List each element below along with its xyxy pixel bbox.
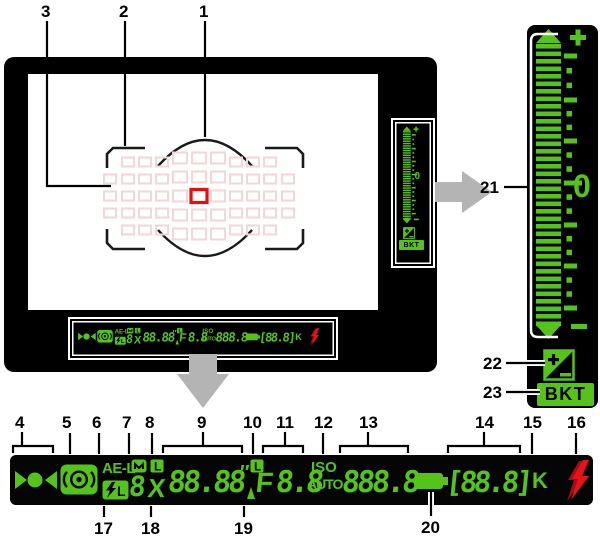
focus-indicator: [77, 329, 96, 343]
iso-label: ISO: [311, 460, 337, 475]
shutter-speed-value: 88.88: [166, 468, 244, 498]
callout-14: 14: [475, 414, 494, 431]
metering-icon: [97, 330, 113, 343]
flash-sync-indicator: X: [133, 334, 141, 345]
callout-9: 9: [197, 414, 206, 431]
callout-11: 11: [276, 414, 294, 431]
callout-20: 20: [421, 519, 440, 536]
flash-ready-bolt-icon: [309, 327, 322, 346]
callout-21: 21: [480, 179, 499, 196]
exposure-compensation-icon: [403, 227, 415, 239]
frames-remaining-value: [88.8]: [258, 331, 294, 343]
fv-lock-l: L: [117, 483, 126, 499]
callout-15: 15: [523, 414, 542, 431]
callout-17: 17: [94, 520, 113, 537]
scale-minus-glyph: [414, 219, 419, 221]
lcd-status-bar: AE-L L 8 L X 88.88 ″ L: [76, 326, 321, 347]
fv-lock-indicator: L: [102, 480, 129, 500]
active-focus-point: [191, 190, 207, 203]
fv-lock-indicator: L: [115, 337, 126, 345]
callout-3: 3: [41, 3, 50, 20]
exposure-compensation-icon: [543, 349, 575, 381]
viewfinder-diagram: AE-L L 8 L X 88.88 ″ L: [0, 0, 600, 540]
flash-sync-indicator: X: [147, 475, 167, 501]
exposure-compensation-icon: [543, 349, 575, 381]
comp-minus-glyph: [560, 373, 571, 377]
callout-18: 18: [141, 520, 160, 537]
callout-22: 22: [483, 355, 502, 372]
thousands-indicator: K: [532, 470, 548, 492]
viewfinder-exposure-indicator: 0 BKT: [391, 118, 435, 268]
shutter-speed-value: 88.88: [142, 331, 175, 344]
scale-minus-glyph: [571, 324, 587, 329]
callout-1: 1: [199, 3, 208, 20]
shutter-lock-icon: L: [150, 459, 164, 473]
fv-lock-l: L: [121, 339, 125, 345]
iso-value: 888.8: [215, 331, 248, 344]
bracketing-indicator: BKT: [399, 240, 424, 250]
seconds-mark: ″: [240, 463, 250, 483]
callout-8: 8: [145, 414, 154, 431]
callout-13: 13: [359, 414, 378, 431]
bracketing-indicator: BKT: [537, 383, 594, 406]
comp-minus-glyph: [409, 236, 413, 237]
mode-digit: 8: [128, 473, 145, 501]
focus-indicator: [13, 463, 59, 497]
lcd-status-bar: AE-L L 8 L X 88.88 ″ L: [10, 455, 593, 505]
scale-zero-label: 0: [573, 168, 591, 204]
status-bar-enlarged: AE-L L 8 L X 88.88 ″ L: [10, 455, 593, 505]
callout-2: 2: [119, 3, 128, 20]
callout-4: 4: [15, 414, 24, 431]
thousands-indicator: K: [295, 332, 302, 341]
iso-value: 888.8: [340, 468, 418, 498]
exposure-compensation-icon: [403, 226, 415, 238]
viewfinder-screen: [28, 74, 378, 310]
exposure-scale: 0: [533, 28, 597, 344]
flash-ready-bolt-icon: [564, 458, 594, 503]
callout-12: 12: [314, 414, 333, 431]
scale-zero-label: 0: [415, 171, 421, 182]
callout-5: 5: [62, 414, 71, 431]
iso-auto-label: AUTO: [201, 335, 216, 341]
callout-6: 6: [92, 414, 101, 431]
metering-icon: [60, 464, 98, 495]
callout-16: 16: [567, 414, 586, 431]
frames-remaining-value: [88.8]: [444, 468, 531, 497]
aperture-stop-indicator: F: [255, 469, 275, 497]
svg-text:L: L: [154, 460, 161, 474]
aperture-stop-indicator: F: [179, 332, 187, 344]
exposure-scale: 0: [402, 126, 422, 225]
mode-digit: 8: [125, 334, 132, 346]
callout-19: 19: [234, 520, 253, 537]
callout-10: 10: [243, 414, 262, 431]
viewfinder-status-bar: AE-L L 8 L X 88.88 ″ L: [68, 317, 338, 360]
focus-points-grid: [104, 153, 294, 240]
callout-23: 23: [483, 384, 502, 401]
iso-label: ISO: [202, 328, 213, 334]
iso-auto-label: AUTO: [307, 477, 342, 491]
callout-7: 7: [122, 414, 131, 431]
